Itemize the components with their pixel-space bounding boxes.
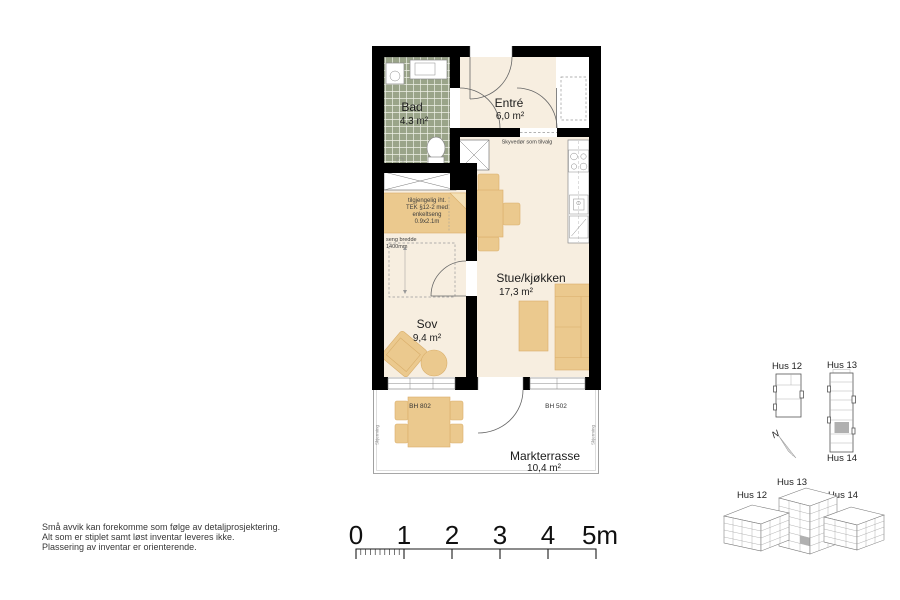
dining-chair	[503, 203, 520, 225]
key-plan: Hus 12 Hus 13 Hus 14	[770, 360, 857, 464]
sofa	[555, 284, 590, 370]
door-swing-arc	[478, 390, 523, 433]
scale-label: 3	[493, 520, 507, 550]
north-needle-line	[779, 436, 794, 457]
screen-note-left: Skjerming	[375, 424, 380, 445]
toilet-tank	[428, 157, 444, 164]
note-line-3: Plassering av inventar er orienterende.	[42, 542, 197, 552]
room-area-stue: 17,3 m²	[499, 287, 534, 298]
sliding-door-option	[520, 128, 557, 137]
scale-label: 2	[445, 520, 459, 550]
scale-label: 4	[541, 520, 555, 550]
window-sov	[388, 378, 455, 389]
room-area-bad: 4,3 m²	[400, 116, 429, 127]
dining-chair	[478, 237, 499, 251]
scale-label: 5m	[582, 520, 618, 550]
floor-plan-drawing: Bad 4,3 m² Entré 6,0 m² Stue/kjøkken 17,…	[0, 0, 900, 600]
sliding-door-note: Skyvedør som tilvalg	[502, 140, 553, 146]
floor-plan-sheet: Bad 4,3 m² Entré 6,0 m² Stue/kjøkken 17,…	[0, 0, 900, 600]
window-stue	[530, 378, 585, 389]
dining-table	[476, 190, 503, 237]
key-plan-label-hus12: Hus 12	[772, 361, 802, 372]
ottoman	[421, 350, 447, 376]
scale-label: 0	[349, 520, 363, 550]
svg-text:seng bredde: seng bredde	[386, 237, 417, 243]
svg-text:0.9x2.1m: 0.9x2.1m	[415, 219, 440, 225]
highlighted-unit	[835, 422, 850, 433]
coffee-table	[519, 301, 548, 351]
note-line-1: Små avvik kan forekomme som følge av det…	[42, 522, 280, 532]
key-plan-label-hus14: Hus 14	[827, 453, 857, 464]
dining-chair	[478, 174, 499, 191]
key-plan-hus12	[774, 374, 804, 417]
svg-text:enkeltseng: enkeltseng	[412, 212, 441, 218]
wardrobe-crossed-sov	[384, 172, 456, 190]
north-arrow: N	[770, 428, 796, 458]
terrace-door	[478, 377, 523, 433]
toilet	[427, 137, 445, 159]
note-line-2: Alt som er stiplet samt løst inventar le…	[42, 532, 235, 542]
scale-bar: 0 1 2 3 4 5m	[349, 520, 618, 559]
scale-label: 1	[397, 520, 411, 550]
room-label-terrasse: Markterrasse	[510, 449, 580, 463]
room-label-sov: Sov	[417, 317, 438, 331]
room-area-entre: 6,0 m²	[496, 111, 525, 122]
scale-bar-ticks	[356, 549, 597, 559]
room-label-bad: Bad	[401, 100, 422, 114]
iso-label-hus13: Hus 13	[777, 477, 807, 488]
iso-view: Hus 13 Hus 12 Hus 14	[724, 477, 884, 554]
room-area-terrasse: 10,4 m²	[527, 463, 562, 474]
north-label: N	[770, 428, 781, 441]
kitchen-counter	[568, 140, 589, 243]
room-label-stue: Stue/kjøkken	[496, 271, 565, 285]
terrace-chair	[450, 424, 463, 443]
iso-label-hus12: Hus 12	[737, 490, 767, 501]
disclaimer-notes: Små avvik kan forekomme som følge av det…	[42, 522, 280, 552]
room-label-entre: Entré	[495, 96, 524, 110]
terrace-chair	[395, 424, 408, 443]
terrace-chair	[395, 401, 408, 420]
terrace-chair	[450, 401, 463, 420]
iso-hus14	[824, 507, 884, 550]
window-sill-label-sov: BH 802	[409, 403, 431, 410]
iso-hus12	[724, 505, 789, 551]
svg-text:tilgjengelig iht.: tilgjengelig iht.	[408, 198, 446, 204]
svg-text:1400mm: 1400mm	[386, 244, 408, 250]
key-plan-hus13	[828, 370, 856, 453]
window-sill-label-stue: BH 502	[545, 403, 567, 410]
room-area-sov: 9,4 m²	[413, 333, 442, 344]
screen-note-right: Skjerming	[591, 424, 596, 445]
svg-text:TEK §12-2 med: TEK §12-2 med	[406, 205, 448, 211]
